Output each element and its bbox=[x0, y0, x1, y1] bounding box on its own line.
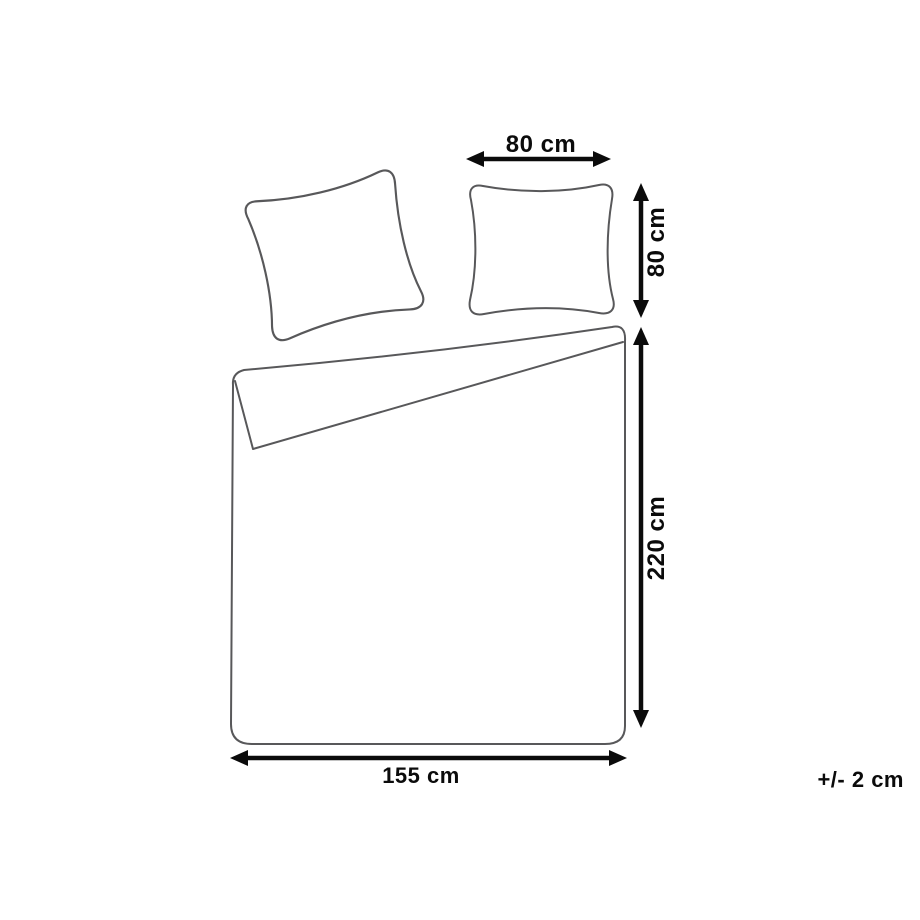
left-pillowcase-outline bbox=[243, 168, 425, 342]
right-pillowcase-outline bbox=[470, 185, 614, 315]
pillow-width-label: 80 cm bbox=[481, 131, 601, 159]
arrowhead-down-icon bbox=[633, 710, 649, 728]
pillow-height-label: 80 cm bbox=[643, 182, 671, 302]
duvet-fold-crease bbox=[235, 342, 623, 449]
bedding-dimensions-diagram: 80 cm 80 cm 220 cm 155 cm +/- 2 cm bbox=[0, 0, 920, 920]
duvet-length-label: 220 cm bbox=[643, 478, 671, 598]
duvet-cover-outline bbox=[231, 327, 625, 744]
tolerance-label: +/- 2 cm bbox=[788, 766, 904, 794]
arrowhead-down-icon bbox=[633, 300, 649, 318]
arrowhead-left-icon bbox=[230, 750, 248, 766]
duvet-width-label: 155 cm bbox=[361, 762, 481, 790]
arrowhead-up-icon bbox=[633, 327, 649, 345]
arrowhead-right-icon bbox=[609, 750, 627, 766]
